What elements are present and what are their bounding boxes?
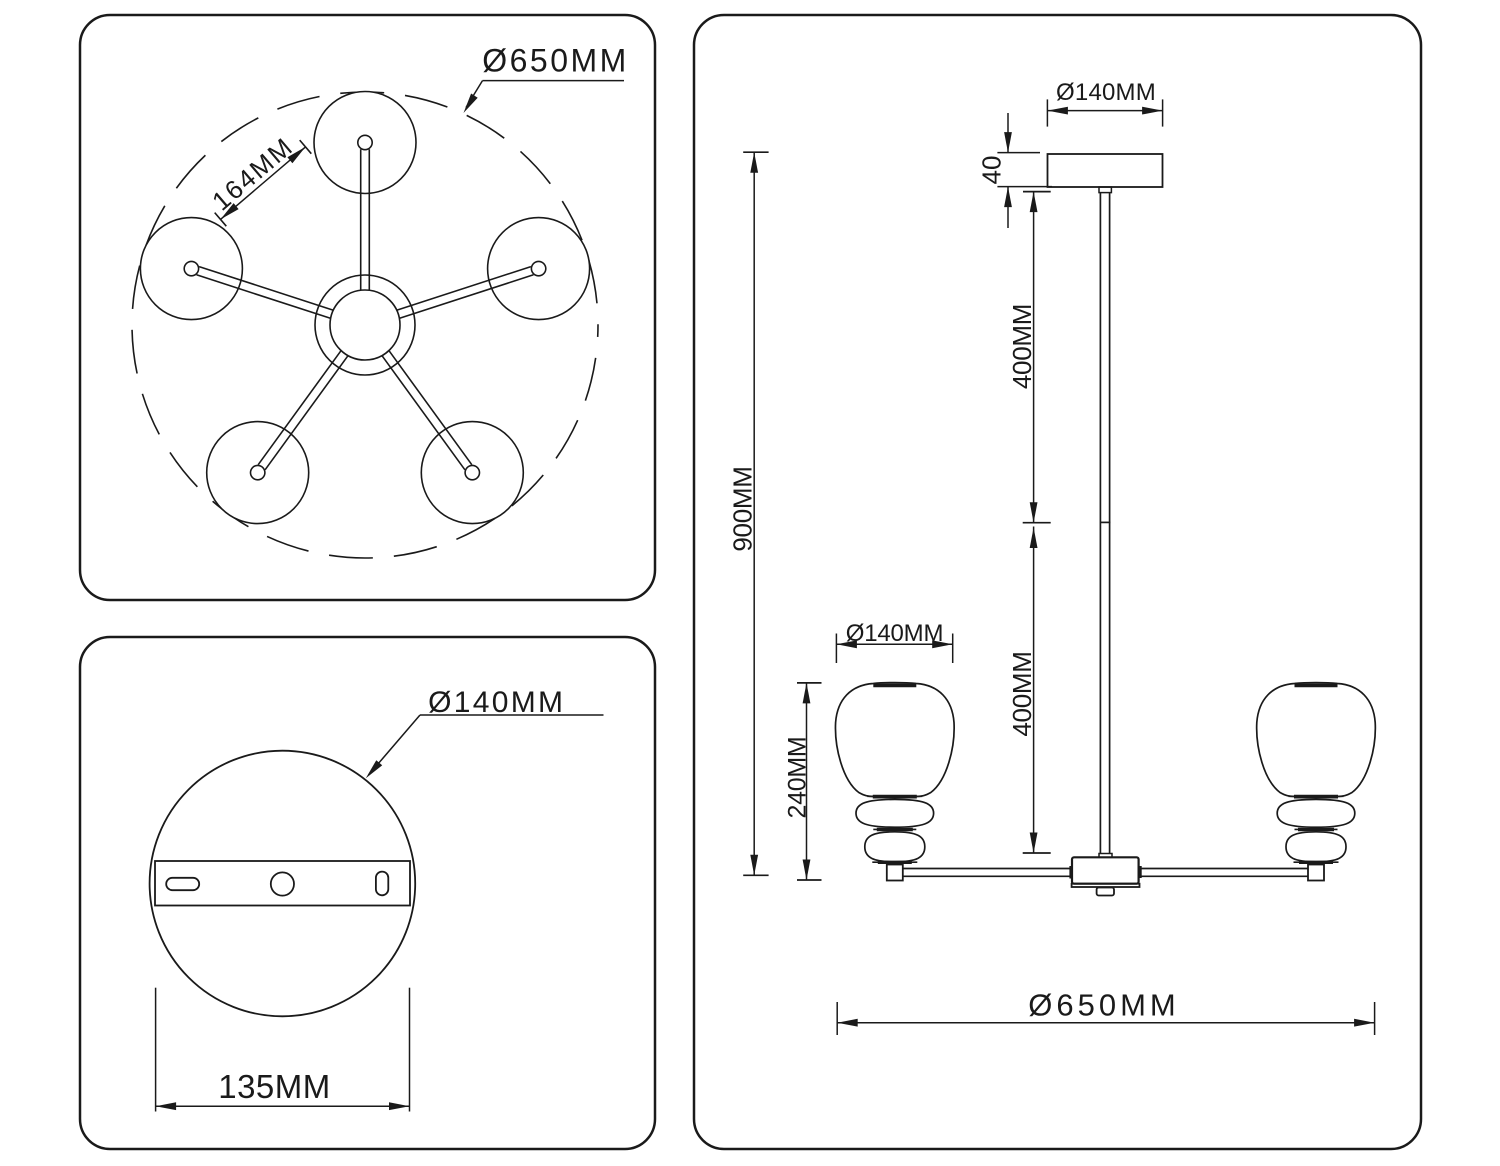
svg-text:Ø650MM: Ø650MM (482, 43, 629, 79)
svg-text:900MM: 900MM (728, 466, 758, 551)
svg-text:Ø650MM: Ø650MM (1028, 988, 1179, 1023)
svg-text:400MM: 400MM (1007, 304, 1037, 389)
svg-text:Ø140MM: Ø140MM (846, 620, 944, 647)
svg-text:135MM: 135MM (218, 1068, 331, 1105)
svg-text:Ø140MM: Ø140MM (428, 686, 565, 719)
svg-text:Ø140MM: Ø140MM (1056, 79, 1156, 106)
svg-text:164MM: 164MM (206, 131, 299, 217)
svg-text:400MM: 400MM (1007, 651, 1037, 736)
svg-text:240MM: 240MM (783, 737, 811, 819)
svg-text:40: 40 (977, 156, 1007, 185)
